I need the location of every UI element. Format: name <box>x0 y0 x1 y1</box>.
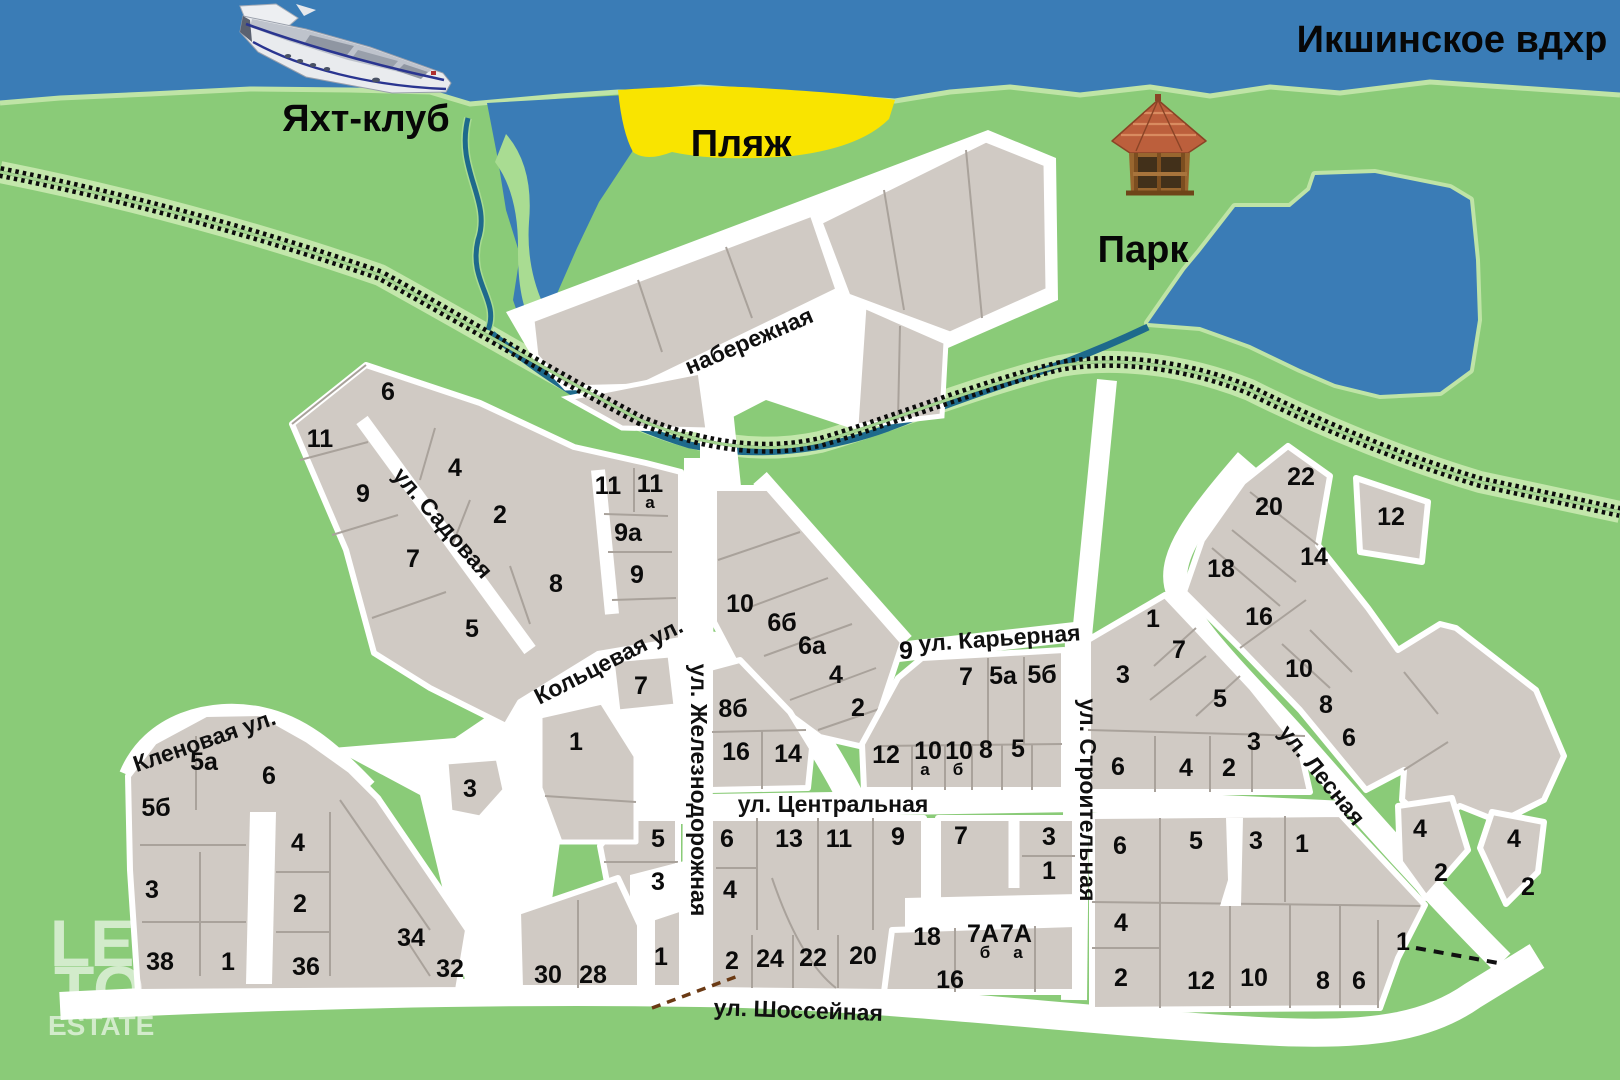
svg-text:3: 3 <box>651 868 665 896</box>
svg-text:3: 3 <box>1116 661 1130 689</box>
svg-text:5б: 5б <box>1027 661 1056 689</box>
svg-text:6: 6 <box>262 762 276 790</box>
svg-text:22: 22 <box>799 944 827 972</box>
svg-text:7: 7 <box>954 822 968 850</box>
svg-text:18: 18 <box>1207 555 1235 583</box>
svg-text:8: 8 <box>549 570 563 598</box>
svg-text:6: 6 <box>1342 724 1356 752</box>
svg-text:10: 10 <box>1240 964 1268 992</box>
svg-text:2: 2 <box>725 947 739 975</box>
svg-text:7: 7 <box>959 663 973 691</box>
svg-text:2: 2 <box>1434 859 1448 887</box>
svg-text:16: 16 <box>1245 603 1273 631</box>
svg-text:ул. Железнодорожная: ул. Железнодорожная <box>686 664 712 916</box>
svg-text:10: 10 <box>1285 655 1313 683</box>
svg-text:1: 1 <box>1396 928 1410 956</box>
svg-text:2: 2 <box>851 694 865 722</box>
svg-text:а: а <box>1013 943 1023 962</box>
svg-text:ESTATE: ESTATE <box>48 1010 154 1041</box>
svg-text:34: 34 <box>397 924 425 952</box>
svg-text:5: 5 <box>1213 685 1227 713</box>
svg-text:6: 6 <box>381 378 395 406</box>
svg-text:18: 18 <box>913 923 941 951</box>
svg-text:3: 3 <box>1249 827 1263 855</box>
svg-text:7: 7 <box>1172 636 1186 664</box>
svg-text:6: 6 <box>1113 832 1127 860</box>
svg-text:32: 32 <box>436 955 464 983</box>
svg-text:6: 6 <box>1352 967 1366 995</box>
svg-text:2: 2 <box>1114 964 1128 992</box>
svg-text:8: 8 <box>1319 691 1333 719</box>
svg-text:Пляж: Пляж <box>691 123 793 165</box>
svg-text:11: 11 <box>826 825 853 853</box>
svg-text:7: 7 <box>634 672 648 700</box>
svg-text:9: 9 <box>630 561 644 589</box>
svg-text:5: 5 <box>1011 735 1025 763</box>
svg-text:9а: 9а <box>614 519 643 547</box>
svg-text:Яхт-клуб: Яхт-клуб <box>282 98 449 140</box>
svg-text:2: 2 <box>293 890 307 918</box>
svg-text:б: б <box>980 943 991 962</box>
svg-text:16: 16 <box>722 738 750 766</box>
svg-text:1: 1 <box>1295 830 1309 858</box>
svg-text:8: 8 <box>1316 967 1330 995</box>
svg-text:12: 12 <box>1187 967 1215 995</box>
svg-text:3: 3 <box>1042 823 1056 851</box>
svg-text:5: 5 <box>651 825 665 853</box>
svg-text:9: 9 <box>891 823 905 851</box>
svg-text:8: 8 <box>979 736 993 764</box>
svg-text:30: 30 <box>534 961 562 989</box>
svg-text:5: 5 <box>1189 827 1203 855</box>
svg-text:38: 38 <box>146 948 174 976</box>
svg-text:4: 4 <box>829 661 843 689</box>
svg-text:9: 9 <box>356 480 370 508</box>
svg-text:5: 5 <box>465 615 479 643</box>
svg-text:4: 4 <box>1413 815 1427 843</box>
svg-text:1: 1 <box>221 948 235 976</box>
svg-text:а: а <box>920 760 930 779</box>
svg-text:11: 11 <box>307 425 334 453</box>
svg-text:10: 10 <box>726 590 754 618</box>
svg-text:3: 3 <box>463 775 477 803</box>
svg-text:Парк: Парк <box>1098 229 1190 271</box>
svg-text:4: 4 <box>448 454 462 482</box>
svg-text:4: 4 <box>291 829 305 857</box>
svg-text:1: 1 <box>569 728 583 756</box>
svg-text:4: 4 <box>1114 909 1128 937</box>
svg-text:4: 4 <box>723 876 737 904</box>
svg-text:5а: 5а <box>190 748 219 776</box>
svg-text:3: 3 <box>145 876 159 904</box>
svg-text:24: 24 <box>756 945 784 973</box>
svg-text:б: б <box>953 760 964 779</box>
svg-text:14: 14 <box>1300 543 1328 571</box>
svg-text:8б: 8б <box>718 695 747 723</box>
svg-text:20: 20 <box>1255 493 1283 521</box>
svg-text:ул. Строительная: ул. Строительная <box>1075 699 1101 902</box>
svg-text:6: 6 <box>1111 753 1125 781</box>
svg-text:6б: 6б <box>767 609 796 637</box>
svg-text:а: а <box>645 493 655 512</box>
svg-text:36: 36 <box>292 953 320 981</box>
svg-text:2: 2 <box>1521 873 1535 901</box>
svg-text:1: 1 <box>654 943 668 971</box>
svg-text:11: 11 <box>595 472 622 500</box>
svg-text:6: 6 <box>720 825 734 853</box>
svg-text:Икшинское вдхр: Икшинское вдхр <box>1297 19 1608 61</box>
svg-text:1: 1 <box>1146 605 1160 633</box>
svg-text:9: 9 <box>899 637 913 665</box>
svg-text:12: 12 <box>1377 503 1405 531</box>
svg-text:12: 12 <box>872 741 900 769</box>
svg-text:28: 28 <box>579 961 607 989</box>
svg-text:6а: 6а <box>798 632 827 660</box>
svg-text:4: 4 <box>1507 825 1521 853</box>
svg-text:ул. Центральная: ул. Центральная <box>738 791 929 817</box>
svg-text:16: 16 <box>936 966 964 994</box>
svg-text:14: 14 <box>774 740 802 768</box>
svg-text:2: 2 <box>493 501 507 529</box>
svg-text:5б: 5б <box>141 794 170 822</box>
svg-text:2: 2 <box>1222 754 1236 782</box>
svg-text:13: 13 <box>775 825 803 853</box>
svg-text:22: 22 <box>1287 463 1315 491</box>
svg-text:7: 7 <box>406 545 420 573</box>
svg-text:1: 1 <box>1042 857 1056 885</box>
svg-text:5а: 5а <box>989 662 1018 690</box>
svg-text:3: 3 <box>1247 728 1261 756</box>
svg-text:4: 4 <box>1179 754 1193 782</box>
svg-text:20: 20 <box>849 942 877 970</box>
